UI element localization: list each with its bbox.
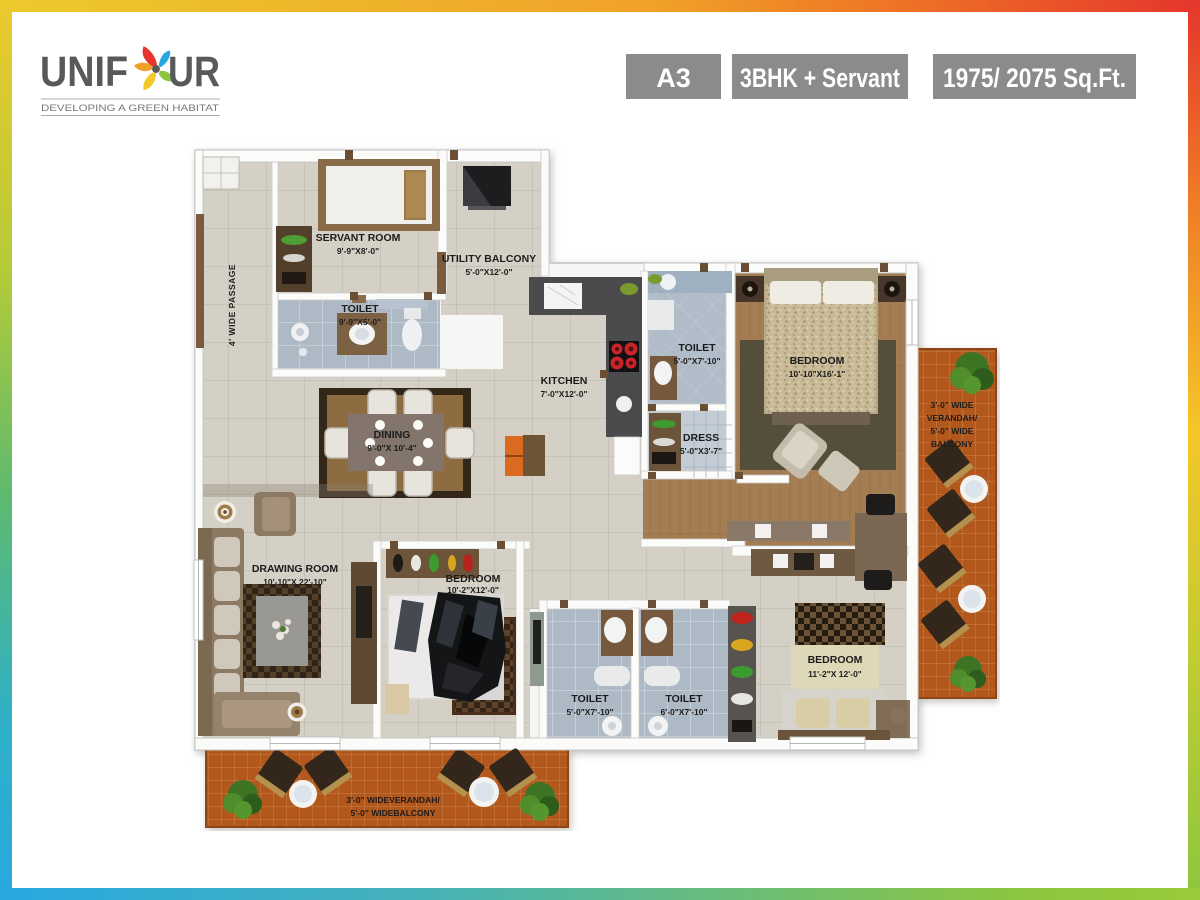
svg-text:3'-0" WIDE: 3'-0" WIDE (931, 400, 974, 410)
svg-text:9'-9"X8'-0": 9'-9"X8'-0" (337, 246, 379, 256)
svg-text:5'-0"X3'-7": 5'-0"X3'-7" (680, 446, 722, 456)
svg-text:DINING: DINING (374, 429, 411, 441)
svg-text:3'-0" WIDEVERANDAH/: 3'-0" WIDEVERANDAH/ (346, 795, 440, 805)
svg-text:DRAWING ROOM: DRAWING ROOM (252, 563, 339, 575)
svg-text:7'-0"X12'-0": 7'-0"X12'-0" (540, 389, 587, 399)
svg-text:10'-10"X16'-1": 10'-10"X16'-1" (789, 369, 846, 379)
svg-text:TOILET: TOILET (678, 342, 716, 354)
svg-text:TOILET: TOILET (571, 693, 609, 705)
svg-text:5'-0"X7'-10": 5'-0"X7'-10" (673, 356, 720, 366)
svg-text:SERVANT ROOM: SERVANT ROOM (316, 232, 401, 244)
svg-text:10'-10"X 22'-10": 10'-10"X 22'-10" (263, 577, 327, 587)
svg-text:DRESS: DRESS (683, 432, 719, 444)
svg-text:5'-0" WIDEBALCONY: 5'-0" WIDEBALCONY (351, 808, 436, 818)
svg-text:5'-0"X12'-0": 5'-0"X12'-0" (465, 267, 512, 277)
svg-text:BEDROOM: BEDROOM (790, 355, 845, 367)
svg-text:4' WIDE PASSAGE: 4' WIDE PASSAGE (227, 264, 237, 346)
svg-text:9'-0"X 10'-4": 9'-0"X 10'-4" (367, 443, 416, 453)
svg-text:KITCHEN: KITCHEN (541, 375, 588, 387)
svg-text:BEDROOM: BEDROOM (446, 573, 501, 585)
svg-text:UTILITY BALCONY: UTILITY BALCONY (442, 253, 536, 265)
svg-text:11'-2"X 12'-0": 11'-2"X 12'-0" (808, 669, 862, 679)
svg-text:BALCONY: BALCONY (931, 439, 973, 449)
svg-text:6'-0"X7'-10": 6'-0"X7'-10" (660, 707, 707, 717)
svg-text:TOILET: TOILET (665, 693, 703, 705)
svg-text:9'-9"X5'-0": 9'-9"X5'-0" (339, 317, 381, 327)
svg-text:5'-0" WIDE: 5'-0" WIDE (931, 426, 974, 436)
svg-text:TOILET: TOILET (341, 303, 379, 315)
svg-text:VERANDAH/: VERANDAH/ (927, 413, 978, 423)
svg-text:5'-0"X7'-10": 5'-0"X7'-10" (566, 707, 613, 717)
svg-text:BEDROOM: BEDROOM (808, 654, 863, 666)
svg-text:10'-2"X12'-0": 10'-2"X12'-0" (447, 585, 499, 595)
